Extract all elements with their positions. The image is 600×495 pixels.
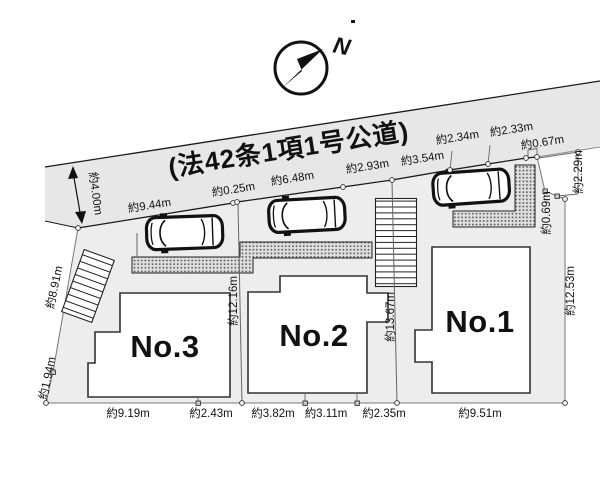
- lot-label-no3: No.3: [130, 329, 199, 364]
- lot-label-no1: No.1: [445, 304, 514, 339]
- dim-12-16: 約12.16m: [226, 276, 240, 326]
- dim-13-67: 約13.67m: [383, 292, 397, 342]
- dim-12-53: 約12.53m: [563, 266, 577, 316]
- dim-3-11: 約3.11m: [305, 406, 348, 420]
- stray-mark: [351, 20, 355, 23]
- dim-3-82: 約3.82m: [251, 406, 294, 420]
- car-icon-lot2: [268, 193, 346, 237]
- dim-2-35: 約2.35m: [362, 406, 405, 420]
- car-icon-lot3: [146, 211, 223, 254]
- dim-2-29: 約2.29m: [571, 150, 585, 193]
- site-plan-svg: (法42条1項1号公道) 約9.44m 約0.25m 約6.48m 約2.93m…: [0, 0, 600, 495]
- site-plan: (法42条1項1号公道) 約9.44m 約0.25m 約6.48m 約2.93m…: [0, 0, 600, 495]
- dim-9-51: 約9.51m: [458, 406, 501, 420]
- stairs-center-icon: [376, 199, 417, 287]
- dim-9-19: 約9.19m: [106, 406, 149, 420]
- dim-0-69: 約0.69m: [539, 191, 553, 234]
- lot-label-no2: No.2: [279, 318, 348, 353]
- dim-2-43: 約2.43m: [189, 406, 232, 420]
